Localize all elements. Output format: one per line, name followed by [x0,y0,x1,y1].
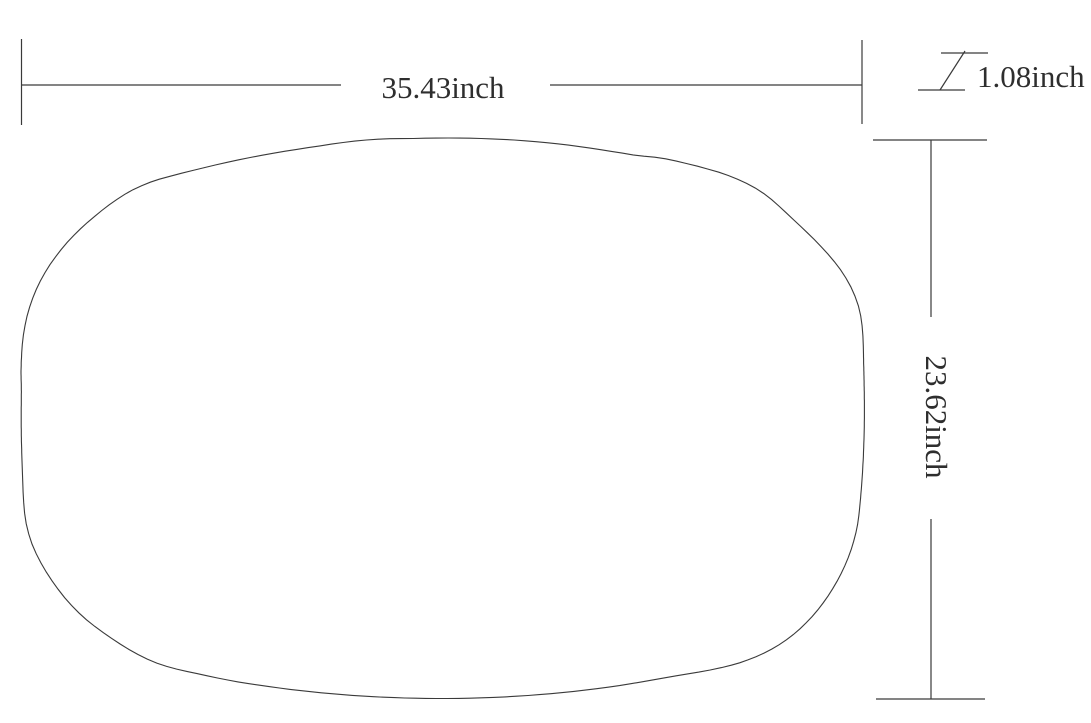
svg-text:35.43inch: 35.43inch [381,70,505,105]
svg-text:23.62inch: 23.62inch [919,355,954,479]
svg-text:1.08inch: 1.08inch [977,59,1085,94]
